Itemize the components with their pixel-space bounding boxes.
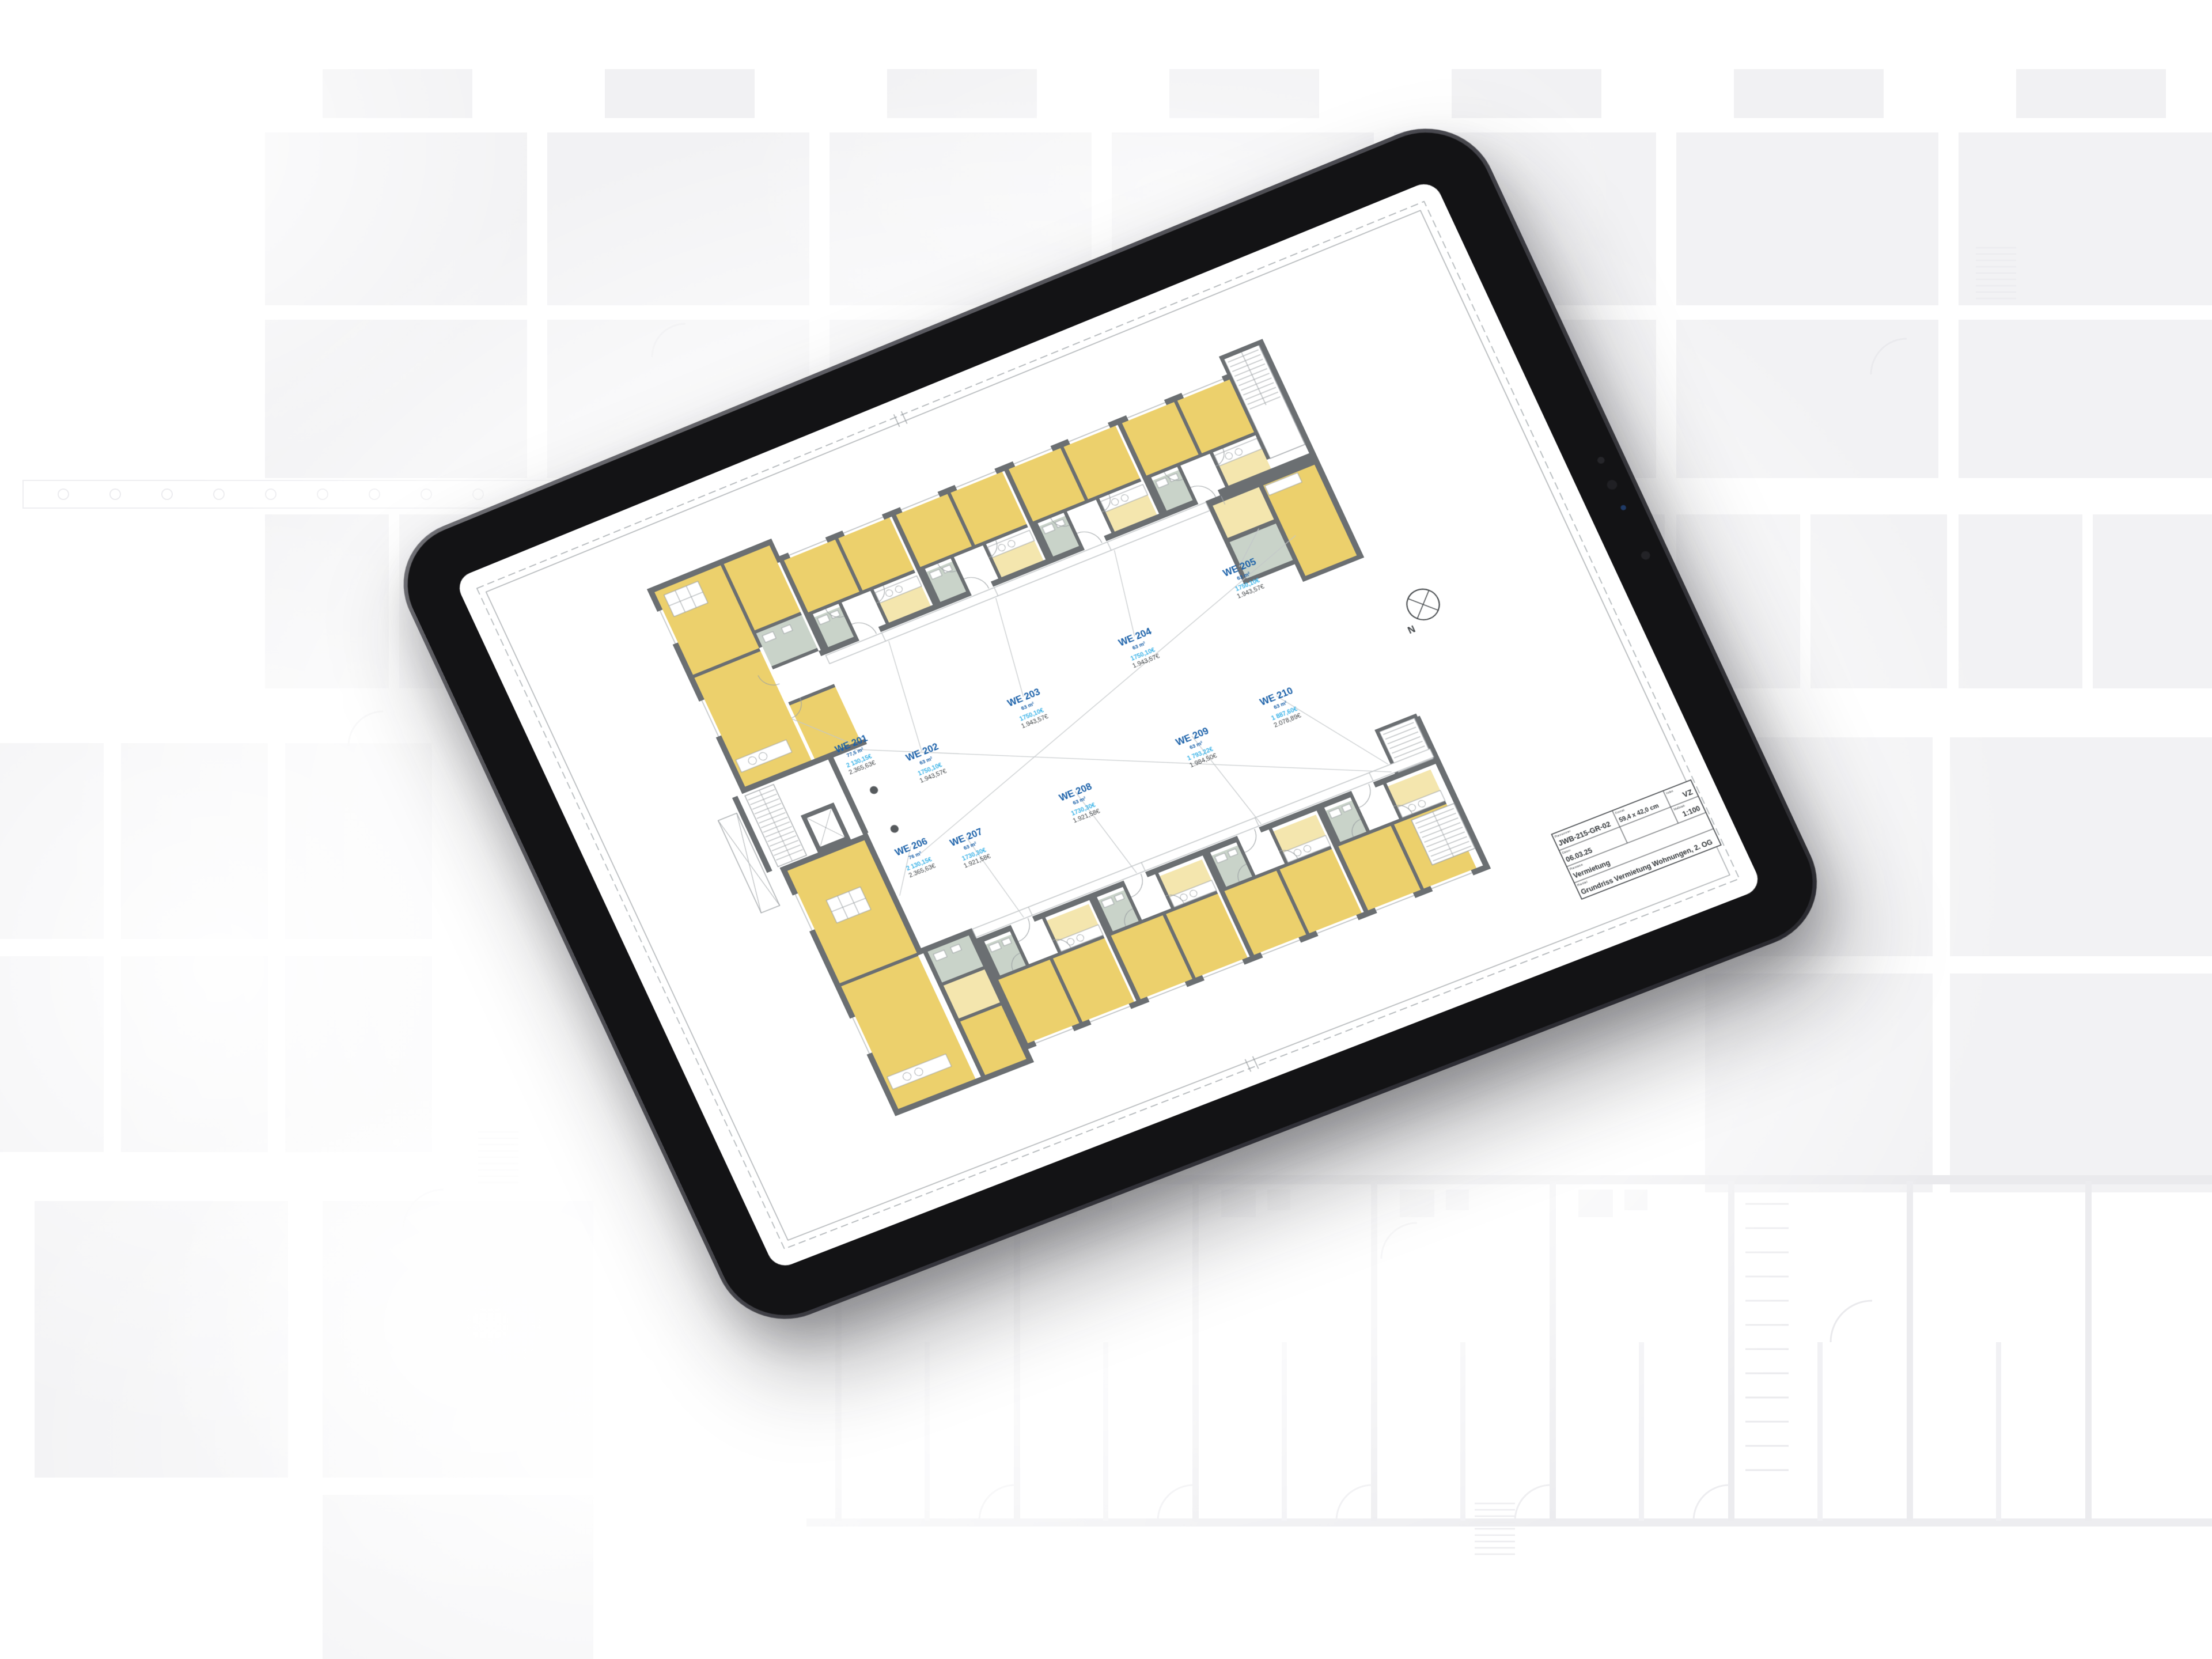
svg-text:N: N: [1407, 624, 1417, 636]
